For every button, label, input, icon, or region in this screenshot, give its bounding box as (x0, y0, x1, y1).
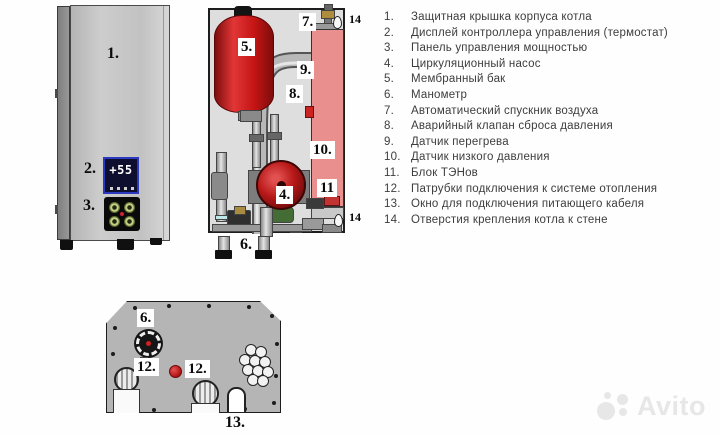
fitting-dark (306, 198, 324, 209)
legend-item: 11.Блок ТЭНов (384, 166, 718, 182)
callout-1-cover: 1. (107, 45, 119, 63)
legend-item: 7.Автоматический спускник воздуха (384, 104, 718, 120)
callout-14-mount-top: 14 (349, 13, 361, 26)
manifold (240, 110, 262, 122)
legend-text: Дисплей контроллера управления (термоста… (411, 26, 668, 42)
power-button (109, 216, 120, 227)
power-button (124, 216, 135, 227)
legend-num: 12. (384, 182, 411, 198)
legend-item: 2.Дисплей контроллера управления (термос… (384, 26, 718, 42)
power-button (109, 202, 120, 213)
parts-legend: 1.Защитная крышка корпуса котла 2.Диспле… (384, 10, 718, 228)
screw (207, 304, 211, 308)
callout-8-relief-valve: 8. (286, 85, 303, 103)
brass-fitting (234, 206, 246, 215)
legend-item: 4.Циркуляционный насос (384, 57, 718, 73)
legend-text: Датчик низкого давления (411, 150, 550, 166)
legend-text: Патрубки подключения к системе отопления (411, 182, 657, 198)
legend-text: Аварийный клапан сброса давления (411, 119, 613, 135)
cover-seam (163, 6, 164, 240)
boiler-front-view: +55 1. 2. 3. (55, 5, 170, 257)
legend-num: 6. (384, 88, 411, 104)
screw (274, 374, 278, 378)
heater-terminal (324, 196, 340, 206)
boiler-internal-view: 5. 7. 9. 8. 10. 11 4. (208, 8, 345, 233)
legend-text: Блок ТЭНов (411, 166, 478, 182)
legend-text: Отверстия крепления котла к стене (411, 213, 608, 229)
membrane-tank (214, 15, 274, 113)
legend-item: 12.Патрубки подключения к системе отопле… (384, 182, 718, 198)
legend-num: 3. (384, 41, 411, 57)
legend-num: 4. (384, 57, 411, 73)
boiler-foot (150, 238, 162, 245)
screw (167, 304, 171, 308)
avito-wordmark: Avito (637, 388, 706, 424)
valve-body (211, 172, 228, 200)
screw (272, 401, 276, 405)
callout-6-manometer-bottom: 6. (137, 309, 154, 327)
screw (247, 305, 251, 309)
pipe-housing-right (191, 403, 220, 414)
legend-item: 10.Датчик низкого давления (384, 150, 718, 166)
boiler-bottom-view: 6. 12. 12. (106, 301, 281, 413)
boiler-foot (117, 239, 134, 250)
legend-item: 14.Отверстия крепления котла к стене (384, 213, 718, 229)
screw (152, 408, 156, 412)
legend-num: 8. (384, 119, 411, 135)
pipe-union (267, 132, 282, 140)
display-indicator-dots (110, 187, 134, 190)
callout-11-heater-block: 11 (317, 179, 337, 197)
callout-3-power-panel: 3. (83, 197, 95, 215)
mount-keyhole-bottom (334, 214, 343, 227)
thermostat-display: +55 (103, 157, 139, 194)
drain-plug (169, 365, 182, 378)
legend-num: 11. (384, 166, 411, 182)
vent-hole (257, 375, 269, 387)
callout-4-pump: 4. (276, 186, 293, 204)
callout-13-cable-window: 13. (225, 414, 245, 432)
legend-text: Автоматический спускник воздуха (411, 104, 598, 120)
fitting (302, 218, 324, 230)
legend-num: 5. (384, 72, 411, 88)
legend-item: 9.Датчик перегрева (384, 135, 718, 151)
pipe-segment (260, 207, 273, 237)
legend-item: 6.Манометр (384, 88, 718, 104)
legend-text: Датчик перегрева (411, 135, 509, 151)
legend-num: 14. (384, 213, 411, 229)
pipe-segment (252, 116, 261, 168)
screw (270, 314, 274, 318)
screw (275, 342, 279, 346)
callout-7-air-vent: 7. (299, 13, 316, 31)
pipe-housing-left (113, 389, 140, 414)
mount-keyhole-top (333, 16, 342, 29)
screw (111, 352, 115, 356)
callout-9-overheat-sensor: 9. (297, 61, 314, 79)
legend-text: Мембранный бак (411, 72, 505, 88)
legend-num: 7. (384, 104, 411, 120)
boiler-foot (60, 240, 73, 250)
pressure-sensor (305, 106, 314, 118)
power-button (124, 202, 135, 213)
legend-num: 1. (384, 10, 411, 26)
callout-14-mount-bottom: 14 (349, 211, 361, 224)
callout-10-low-pressure-sensor: 10. (310, 141, 335, 159)
legend-text: Панель управления мощностью (411, 41, 587, 57)
legend-num: 13. (384, 197, 411, 213)
outlet-pipe (258, 236, 270, 251)
screw (113, 326, 117, 330)
legend-num: 9. (384, 135, 411, 151)
cable-window (227, 387, 246, 414)
pipe-cap (255, 250, 272, 259)
legend-item: 5.Мембранный бак (384, 72, 718, 88)
manometer-gauge (134, 329, 163, 358)
callout-6-manometer-internal: 6. (240, 236, 252, 254)
boiler-side-panel (57, 6, 70, 240)
callout-2-display: 2. (84, 160, 96, 178)
legend-text: Окно для подключения питающего кабеля (411, 197, 644, 213)
gauge-needle-hub (146, 341, 151, 346)
legend-item: 13.Окно для подключения питающего кабеля (384, 197, 718, 213)
avito-watermark: Avito (596, 387, 706, 424)
legend-item: 3.Панель управления мощностью (384, 41, 718, 57)
legend-num: 10. (384, 150, 411, 166)
legend-item: 8.Аварийный клапан сброса давления (384, 119, 718, 135)
air-vent-stem (324, 18, 332, 24)
display-temperature-value: +55 (105, 159, 137, 181)
legend-item: 1.Защитная крышка корпуса котла (384, 10, 718, 26)
callout-5-tank: 5. (238, 38, 255, 56)
callout-12-pipe-left: 12. (134, 358, 159, 376)
callout-12-pipe-right: 12. (185, 360, 210, 378)
gauge-dial (136, 331, 161, 356)
hinge (55, 89, 58, 98)
legend-text: Защитная крышка корпуса котла (411, 10, 592, 26)
legend-text: Циркуляционный насос (411, 57, 541, 73)
pipe-union (249, 134, 264, 142)
pipe-cap (215, 250, 232, 259)
panel-led (120, 212, 124, 216)
outlet-pipe (218, 236, 230, 251)
legend-text: Манометр (411, 88, 467, 104)
avito-logo-icon (596, 387, 632, 424)
hinge (55, 205, 58, 214)
legend-num: 2. (384, 26, 411, 42)
